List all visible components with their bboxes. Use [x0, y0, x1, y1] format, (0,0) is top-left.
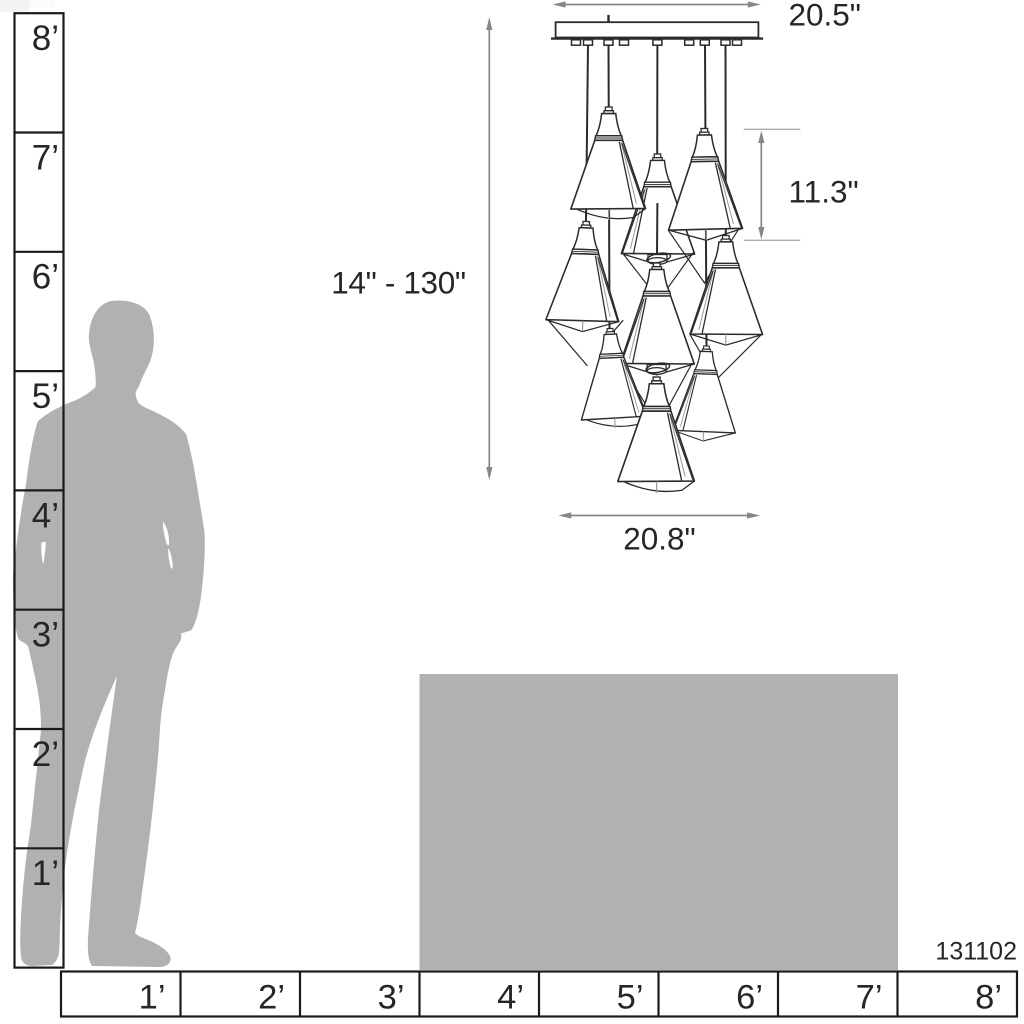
svg-text:7’: 7’	[856, 979, 883, 1017]
svg-text:4’: 4’	[497, 979, 524, 1017]
svg-text:8’: 8’	[975, 979, 1002, 1017]
svg-text:2’: 2’	[32, 735, 59, 774]
svg-text:3’: 3’	[32, 616, 59, 655]
svg-text:20.5": 20.5"	[789, 0, 862, 33]
svg-text:8’: 8’	[32, 19, 59, 58]
svg-text:4’: 4’	[32, 496, 59, 535]
svg-text:2’: 2’	[258, 979, 285, 1017]
svg-text:131102: 131102	[935, 937, 1017, 965]
svg-text:11.3": 11.3"	[789, 173, 859, 209]
svg-text:3’: 3’	[378, 979, 405, 1017]
svg-text:6’: 6’	[736, 979, 763, 1017]
svg-text:14" - 130": 14" - 130"	[331, 265, 465, 301]
svg-text:5’: 5’	[617, 979, 644, 1017]
svg-text:6’: 6’	[32, 258, 59, 297]
svg-text:20.8": 20.8"	[623, 521, 696, 557]
svg-text:5’: 5’	[32, 377, 59, 416]
svg-text:1’: 1’	[32, 854, 59, 893]
svg-text:7’: 7’	[32, 138, 59, 177]
svg-text:1’: 1’	[139, 979, 166, 1017]
